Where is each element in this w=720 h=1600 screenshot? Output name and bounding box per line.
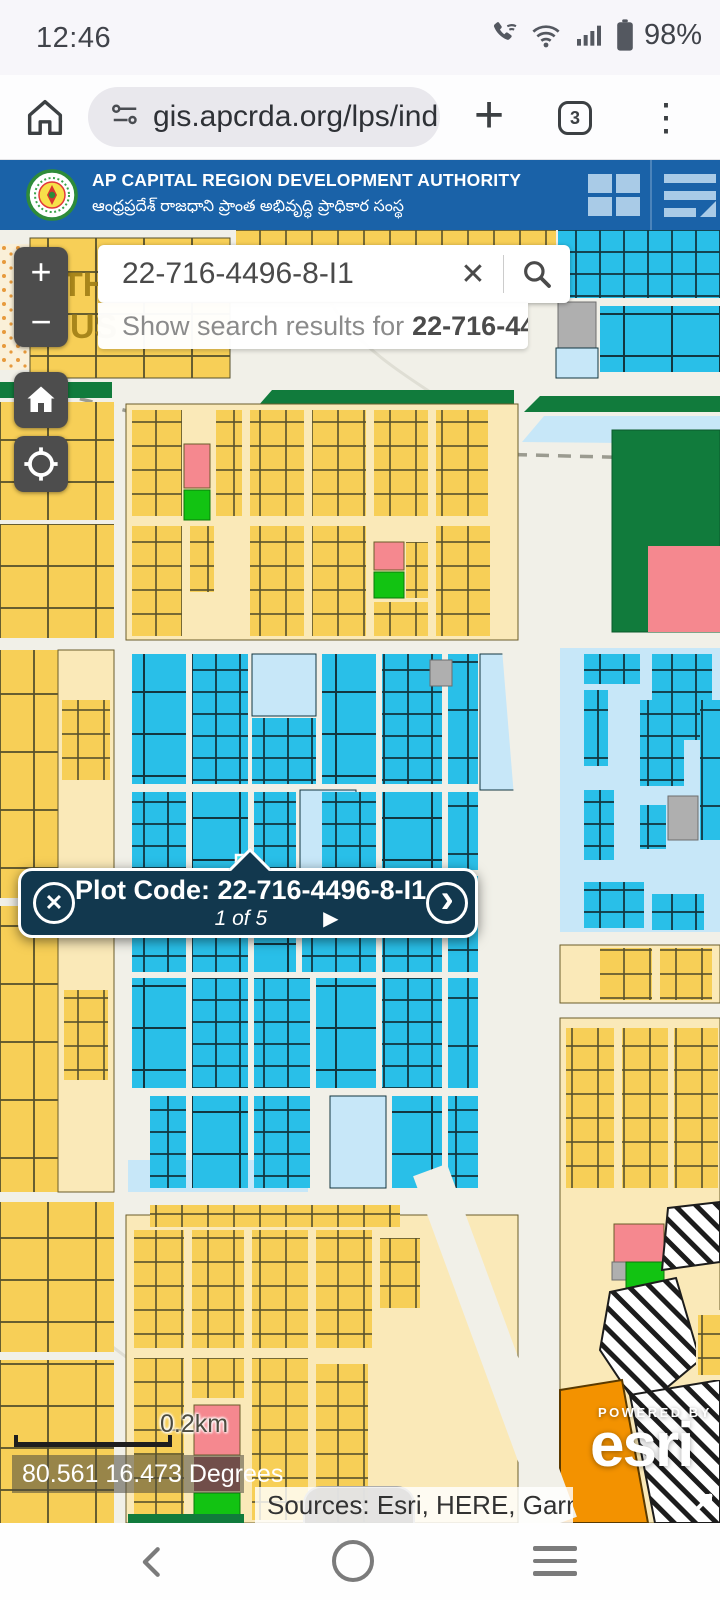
crosshair-icon: [22, 445, 60, 483]
browser-toolbar: gis.apcrda.org/lps/ind + 3 ⋮: [0, 75, 720, 160]
suggestion-prefix: Show search results for: [122, 311, 404, 342]
header-subtitle-telugu: ఆంధ్రప్రదేశ్ రాజధాని ప్రాంత అభివృద్ధి ప్…: [92, 197, 521, 219]
header-divider: [650, 160, 652, 230]
site-settings-icon[interactable]: [110, 100, 140, 135]
grid-apps-icon[interactable]: [588, 174, 640, 216]
coordinates-readout: 80.561 16.473 Degrees: [12, 1455, 244, 1493]
layers-menu-icon[interactable]: [664, 174, 716, 218]
search-clear-icon[interactable]: ✕: [443, 257, 503, 292]
browser-home-icon[interactable]: [22, 95, 68, 146]
url-text[interactable]: gis.apcrda.org/lps/ind: [153, 100, 438, 134]
apcrda-logo: [26, 169, 78, 226]
esri-logo: esri: [590, 1410, 692, 1481]
phone-screen: 12:46 98% gis.apcrda.org/lps/in: [0, 0, 720, 1600]
android-nav-bar: [0, 1523, 720, 1600]
locate-button[interactable]: [14, 436, 68, 492]
search-submit-button[interactable]: [504, 258, 570, 290]
zoom-in-button[interactable]: +: [14, 247, 68, 297]
popup-play-icon[interactable]: ▶: [323, 906, 338, 931]
map-home-button[interactable]: [14, 372, 68, 428]
chevron-right-icon: ›: [440, 877, 453, 922]
popup-close-button[interactable]: ✕: [33, 882, 75, 924]
esri-arrow-icon: [692, 1488, 718, 1519]
search-suggestion[interactable]: Show search results for 22-716-449…: [98, 303, 528, 349]
search-icon: [521, 258, 553, 290]
battery-icon: [615, 18, 635, 52]
zoom-control: + −: [14, 247, 68, 347]
search-input[interactable]: 22-716-4496-8-I1: [98, 257, 443, 291]
url-bar[interactable]: gis.apcrda.org/lps/ind: [88, 87, 440, 147]
scale-bar: [14, 1435, 172, 1447]
browser-menu-icon[interactable]: ⋮: [648, 89, 684, 145]
popup-title: Plot Code: 22-716-4496-8-I1: [75, 875, 426, 906]
popup-pager: 1 of 5: [215, 907, 268, 931]
new-tab-button[interactable]: +: [462, 83, 516, 147]
header-title: AP CAPITAL REGION DEVELOPMENT AUTHORITY: [92, 170, 521, 191]
plot-popup: ✕ Plot Code: 22-716-4496-8-I1 1 of 5 ▶ ›: [18, 868, 478, 938]
zoom-out-button[interactable]: −: [14, 297, 68, 347]
site-header: AP CAPITAL REGION DEVELOPMENT AUTHORITY …: [0, 160, 720, 230]
map-canvas[interactable]: TH US: [0, 230, 720, 1523]
signal-bars-icon: [572, 19, 606, 51]
house-icon: [23, 382, 59, 418]
status-bar: 12:46 98%: [0, 0, 720, 75]
map-attribution: Sources: Esri, HERE, Garm…: [255, 1487, 573, 1523]
popup-next-button[interactable]: ›: [426, 882, 468, 924]
nav-home-icon[interactable]: [332, 1540, 374, 1582]
nav-recents-icon[interactable]: [533, 1546, 577, 1584]
nav-back-icon[interactable]: [135, 1543, 169, 1586]
search-box[interactable]: 22-716-4496-8-I1 ✕: [98, 245, 570, 303]
clock: 12:46: [36, 22, 111, 55]
wifi-calling-icon: [488, 19, 520, 51]
wifi-icon: [529, 19, 563, 51]
tab-switcher-button[interactable]: 3: [558, 101, 592, 135]
suggestion-query: 22-716-449…: [412, 311, 528, 342]
battery-percent: 98%: [644, 19, 702, 52]
